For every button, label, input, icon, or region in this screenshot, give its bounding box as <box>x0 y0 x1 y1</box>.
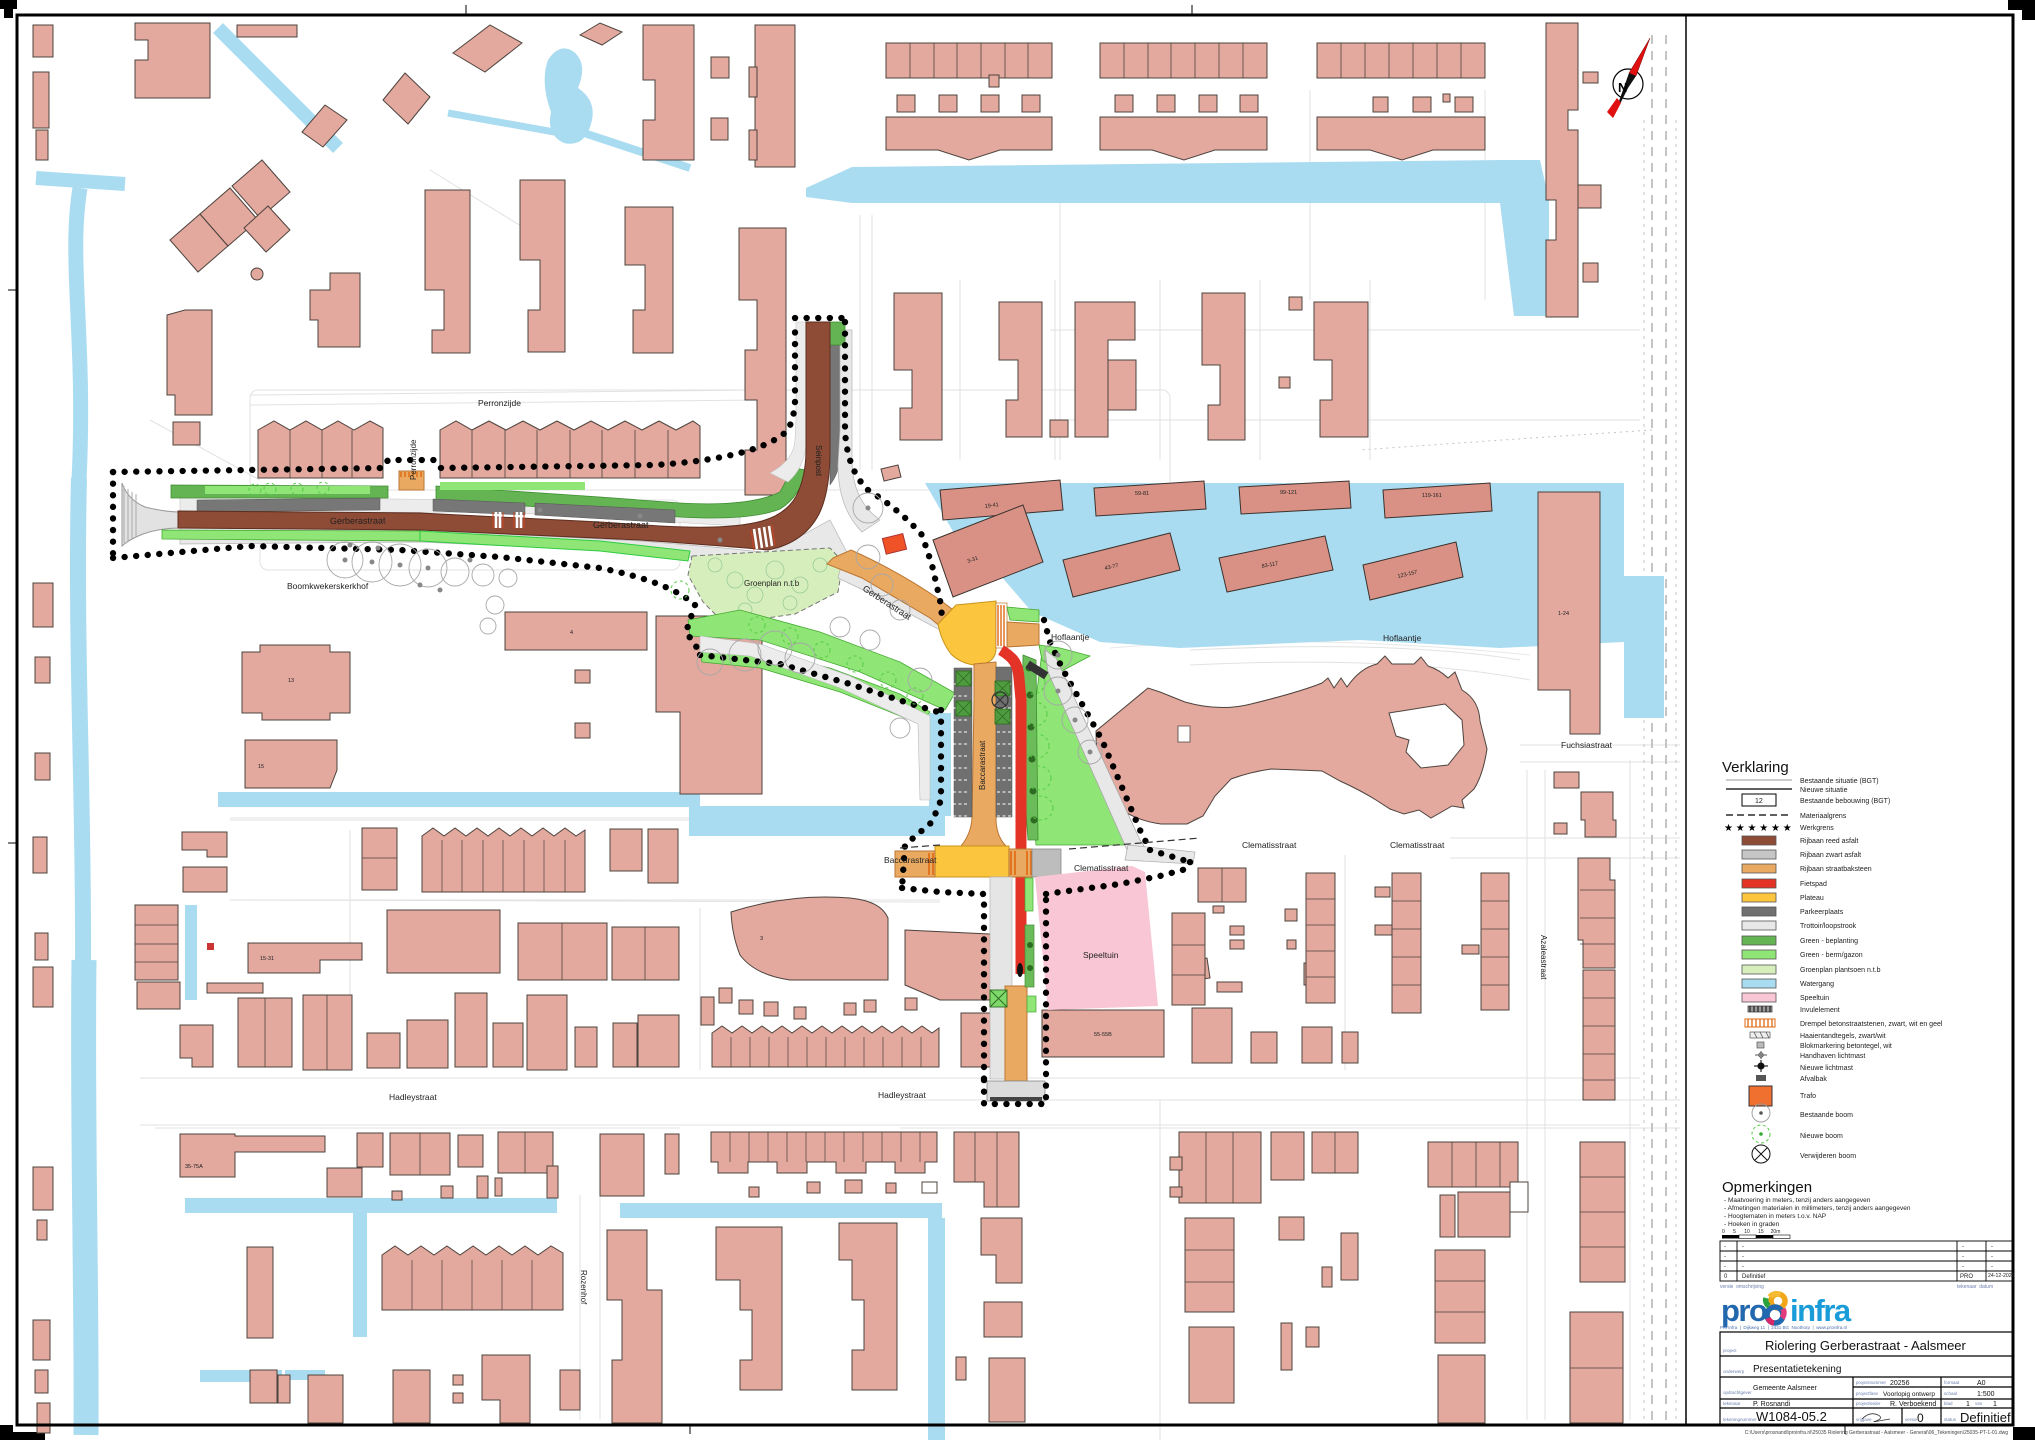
svg-text:35-75A: 35-75A <box>185 1164 203 1170</box>
svg-text:Watergang: Watergang <box>1800 981 1834 988</box>
svg-text:Perronzijde: Perronzijde <box>409 439 418 480</box>
svg-text:Azaleastraat: Azaleastraat <box>1539 935 1548 980</box>
svg-text:Hoflaantje: Hoflaantje <box>1383 633 1422 643</box>
svg-text:Handhaven lichtmast: Handhaven lichtmast <box>1800 1053 1865 1060</box>
svg-text:Bestaande bebouwing (BGT): Bestaande bebouwing (BGT) <box>1800 798 1890 805</box>
svg-text:1:500: 1:500 <box>1977 1391 1995 1398</box>
svg-text:Verwijderen boom: Verwijderen boom <box>1800 1153 1856 1160</box>
svg-text:Clematisstraat: Clematisstraat <box>1390 840 1445 850</box>
svg-text:Afvalbak: Afvalbak <box>1800 1076 1827 1083</box>
svg-text:Rijbaan zwart asfalt: Rijbaan zwart asfalt <box>1800 852 1861 859</box>
svg-text:- Hoogtematen in meters t.o.v.: - Hoogtematen in meters t.o.v. NAP <box>1724 1213 1826 1220</box>
svg-text:Hadleystraat: Hadleystraat <box>878 1090 926 1100</box>
svg-text:- Hoeken in graden: - Hoeken in graden <box>1724 1221 1780 1228</box>
svg-text:59-81: 59-81 <box>1135 491 1149 497</box>
svg-text:Rozenhof: Rozenhof <box>579 1270 588 1305</box>
svg-text:Nieuwe boom: Nieuwe boom <box>1800 1133 1843 1140</box>
svg-text:Baccarastraat: Baccarastraat <box>884 855 937 865</box>
svg-text:schaal: schaal <box>1944 1391 1957 1396</box>
svg-text:15: 15 <box>258 764 264 770</box>
svg-text:status: status <box>1944 1417 1957 1422</box>
svg-text:Green - beplanting: Green - beplanting <box>1800 938 1858 945</box>
svg-text:-: - <box>1991 1244 1993 1250</box>
svg-text:P. Rosnandi: P. Rosnandi <box>1753 1401 1791 1408</box>
svg-text:Fietspad: Fietspad <box>1800 881 1827 888</box>
svg-text:Pro Infra | Dijkweg 11 | 2: Pro Infra | Dijkweg 11 | 2431 BG Noothor… <box>1720 1325 1847 1330</box>
svg-text:Fuchsiastraat: Fuchsiastraat <box>1561 740 1613 750</box>
svg-text:R. Verboekend: R. Verboekend <box>1890 1401 1936 1408</box>
svg-text:versie omschrijving: versie omschrijving <box>1720 1284 1764 1290</box>
svg-text:Speeltuin: Speeltuin <box>1083 950 1119 960</box>
svg-text:Trafo: Trafo <box>1800 1093 1816 1100</box>
svg-text:Definitief: Definitief <box>1742 1274 1766 1280</box>
svg-text:Gemeente Aalsmeer: Gemeente Aalsmeer <box>1753 1385 1817 1392</box>
svg-text:tekenaar: tekenaar <box>1723 1401 1741 1406</box>
svg-text:versie: versie <box>1905 1417 1918 1422</box>
svg-text:Groenplan n.t.b: Groenplan n.t.b <box>744 579 800 588</box>
svg-text:Rijbaan straatbaksteen: Rijbaan straatbaksteen <box>1800 866 1872 873</box>
svg-text:Parkeerplaats: Parkeerplaats <box>1800 909 1844 916</box>
svg-text:tekenaar datum: tekenaar datum <box>1957 1284 1993 1290</box>
svg-text:-: - <box>1991 1264 1993 1270</box>
svg-text:formaat: formaat <box>1944 1380 1960 1385</box>
svg-text:-: - <box>1724 1264 1726 1270</box>
svg-text:-: - <box>1991 1254 1993 1260</box>
svg-text:-: - <box>1742 1264 1744 1270</box>
svg-text:Materiaalgrens: Materiaalgrens <box>1800 813 1847 820</box>
svg-text:Groenplan plantsoen n.t.b: Groenplan plantsoen n.t.b <box>1800 967 1881 974</box>
svg-text:Nieuwe lichtmast: Nieuwe lichtmast <box>1800 1065 1853 1072</box>
svg-text:13: 13 <box>288 678 294 684</box>
svg-text:projectnummer: projectnummer <box>1856 1380 1887 1385</box>
svg-text:Green - berm/gazon: Green - berm/gazon <box>1800 952 1863 959</box>
svg-text:-: - <box>1962 1264 1964 1270</box>
svg-text:PRO: PRO <box>1960 1274 1973 1280</box>
svg-text:-: - <box>1724 1244 1726 1250</box>
svg-text:Voorlopig ontwerp: Voorlopig ontwerp <box>1883 1391 1935 1398</box>
svg-text:Gerberastraat: Gerberastraat <box>330 516 386 526</box>
svg-text:- Maatvoering in meters, tenzi: - Maatvoering in meters, tenzij anders a… <box>1724 1197 1871 1204</box>
svg-text:Boomkwekerskerkhof: Boomkwekerskerkhof <box>287 581 369 591</box>
svg-text:Clematisstraat: Clematisstraat <box>1242 840 1297 850</box>
svg-text:Riolering Gerberastraat - Aals: Riolering Gerberastraat - Aalsmeer <box>1765 1338 1967 1353</box>
svg-text:infra: infra <box>1790 1293 1852 1328</box>
svg-text:Seinpost: Seinpost <box>814 445 823 477</box>
svg-text:Opmerkingen: Opmerkingen <box>1722 1179 1812 1196</box>
svg-text:99-121: 99-121 <box>1280 490 1297 496</box>
svg-text:Definitief: Definitief <box>1960 1410 2011 1425</box>
svg-text:Blokmarkering betontegel, wit: Blokmarkering betontegel, wit <box>1800 1043 1892 1050</box>
svg-text:0: 0 <box>1917 1411 1924 1425</box>
svg-text:★ ★ ★ ★ ★ ★: ★ ★ ★ ★ ★ ★ <box>1724 823 1792 834</box>
svg-text:119-161: 119-161 <box>1422 493 1442 499</box>
svg-text:Perronzijde: Perronzijde <box>478 398 521 408</box>
svg-text:tekeningnummer: tekeningnummer <box>1723 1417 1757 1422</box>
svg-text:N: N <box>1618 80 1627 95</box>
svg-text:vrijgave: vrijgave <box>1856 1417 1872 1422</box>
svg-text:24-12-2025: 24-12-2025 <box>1988 1273 2015 1279</box>
svg-text:blad: blad <box>1944 1401 1953 1406</box>
svg-text:0 5 10 15 2: 0 5 10 15 20m <box>1722 1229 1780 1235</box>
svg-text:1-24: 1-24 <box>1558 611 1569 617</box>
svg-text:Clematisstraat: Clematisstraat <box>1074 863 1129 873</box>
svg-text:15-31: 15-31 <box>260 956 274 962</box>
svg-text:-: - <box>1962 1244 1964 1250</box>
svg-text:3: 3 <box>760 936 763 942</box>
svg-text:Verklaring: Verklaring <box>1722 759 1789 776</box>
svg-text:12: 12 <box>1755 798 1763 805</box>
svg-text:Trottoir/loopstrook: Trottoir/loopstrook <box>1800 923 1857 930</box>
svg-text:-: - <box>1742 1244 1744 1250</box>
svg-text:project: project <box>1723 1348 1737 1353</box>
svg-text:A0: A0 <box>1977 1380 1986 1387</box>
svg-text:-: - <box>1962 1254 1964 1260</box>
svg-text:van: van <box>1975 1401 1983 1406</box>
svg-text:1: 1 <box>1993 1401 1997 1408</box>
svg-text:Haaientandtegels, zwart/wit: Haaientandtegels, zwart/wit <box>1800 1033 1886 1040</box>
svg-text:Rijbaan reed asfalt: Rijbaan reed asfalt <box>1800 838 1858 845</box>
svg-text:Plateau: Plateau <box>1800 895 1824 902</box>
svg-text:Speeltuin: Speeltuin <box>1800 995 1829 1002</box>
svg-text:-: - <box>1742 1254 1744 1260</box>
svg-text:projectfase: projectfase <box>1856 1391 1879 1396</box>
svg-text:C:\Users\prosnandi\proinfra.nl: C:\Users\prosnandi\proinfra.nl\25035 Rio… <box>1745 1430 2008 1436</box>
svg-text:Werkgrens: Werkgrens <box>1800 825 1834 832</box>
svg-text:Gerberastraat: Gerberastraat <box>593 520 649 530</box>
svg-text:4: 4 <box>570 630 573 636</box>
svg-text:20256: 20256 <box>1890 1380 1910 1387</box>
svg-text:- Afmetingen materialen in mil: - Afmetingen materialen in millimeters, … <box>1724 1205 1911 1212</box>
svg-text:Nieuwe situatie: Nieuwe situatie <box>1800 787 1848 794</box>
svg-text:Drempel betonstraatstenen, zwa: Drempel betonstraatstenen, zwart, wit en… <box>1800 1021 1943 1028</box>
svg-text:onderwerp: onderwerp <box>1723 1369 1745 1374</box>
svg-text:Presentatietekening: Presentatietekening <box>1753 1364 1841 1375</box>
svg-text:Hadleystraat: Hadleystraat <box>389 1092 437 1102</box>
svg-text:Hoflaantje: Hoflaantje <box>1051 632 1090 642</box>
svg-text:Invulelement: Invulelement <box>1800 1007 1840 1014</box>
svg-text:55-55B: 55-55B <box>1094 1032 1112 1038</box>
svg-text:1: 1 <box>1966 1401 1970 1408</box>
svg-text:-: - <box>1724 1254 1726 1260</box>
svg-text:projectleider: projectleider <box>1856 1401 1881 1406</box>
svg-text:Baccarastraat: Baccarastraat <box>978 740 987 790</box>
svg-text:opdrachtgever: opdrachtgever <box>1723 1390 1752 1395</box>
svg-text:W1084-05.2: W1084-05.2 <box>1756 1409 1827 1424</box>
svg-text:pro: pro <box>1721 1293 1767 1328</box>
svg-text:Bestaande situatie (BGT): Bestaande situatie (BGT) <box>1800 778 1879 785</box>
svg-text:Bestaande boom: Bestaande boom <box>1800 1112 1853 1119</box>
